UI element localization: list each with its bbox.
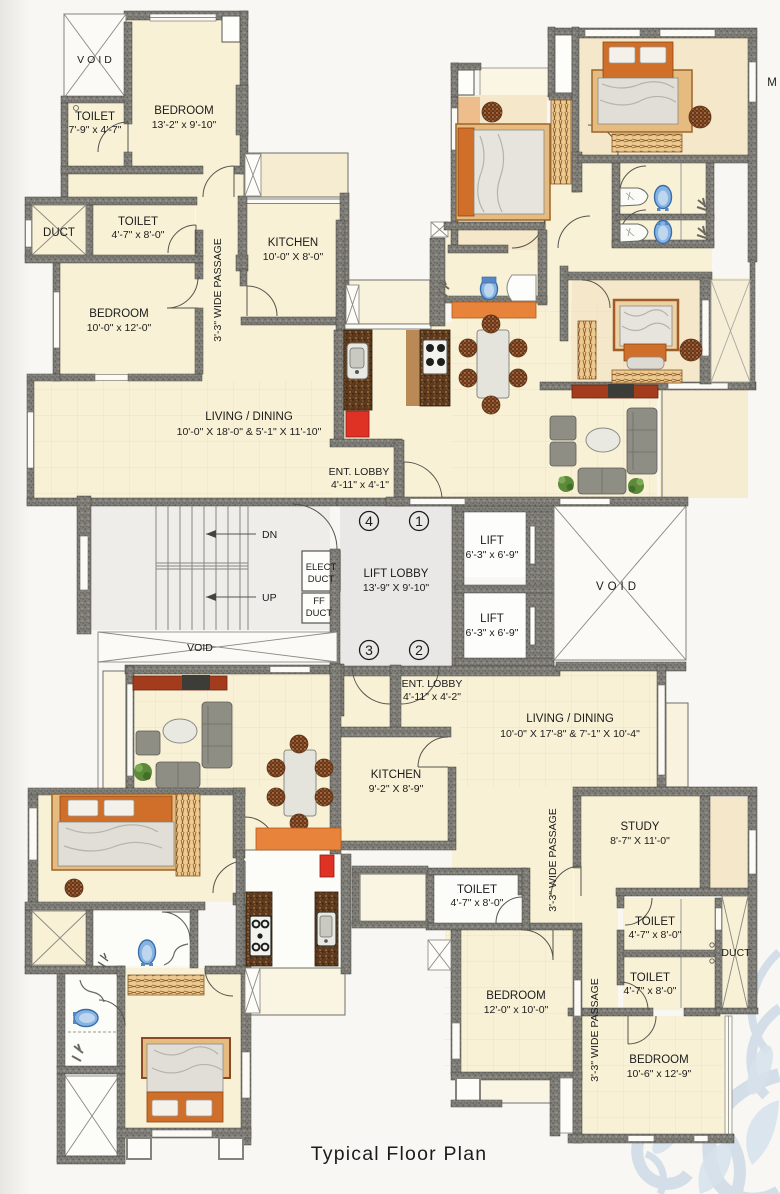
- svg-text:7'-9" x 4'-7": 7'-9" x 4'-7": [69, 124, 122, 136]
- svg-text:13'-9" X 9'-10": 13'-9" X 9'-10": [363, 582, 430, 594]
- svg-text:6'-3" x 6'-9": 6'-3" x 6'-9": [466, 549, 519, 561]
- svg-text:TOILET: TOILET: [630, 972, 670, 984]
- svg-text:BEDROOM: BEDROOM: [486, 990, 545, 1002]
- svg-text:ENT. LOBBY: ENT. LOBBY: [329, 466, 390, 478]
- svg-text:VOID: VOID: [187, 642, 213, 654]
- svg-text:DN: DN: [262, 529, 277, 541]
- svg-text:13'-2" x 9'-10": 13'-2" x 9'-10": [152, 119, 217, 131]
- svg-text:3'-3" WIDE PASSAGE: 3'-3" WIDE PASSAGE: [212, 238, 224, 342]
- svg-text:4'-7" x 8'-0": 4'-7" x 8'-0": [629, 929, 682, 941]
- svg-text:LIFT LOBBY: LIFT LOBBY: [364, 568, 429, 580]
- svg-text:KITCHEN: KITCHEN: [268, 237, 318, 249]
- svg-text:4: 4: [365, 513, 373, 529]
- svg-text:DUCT: DUCT: [306, 608, 333, 619]
- svg-text:FF: FF: [313, 596, 325, 607]
- svg-text:10'-0" X 18'-0" & 5'-1" X 11'-: 10'-0" X 18'-0" & 5'-1" X 11'-10": [177, 426, 322, 438]
- svg-text:LIFT: LIFT: [480, 613, 504, 625]
- svg-text:ELECT: ELECT: [306, 562, 337, 573]
- svg-text:BEDROOM: BEDROOM: [154, 105, 213, 117]
- svg-text:1: 1: [415, 513, 423, 529]
- svg-text:ENT. LOBBY: ENT. LOBBY: [402, 678, 463, 690]
- svg-text:LIVING / DINING: LIVING / DINING: [526, 713, 614, 725]
- svg-text:KITCHEN: KITCHEN: [371, 769, 421, 781]
- svg-text:10'-0" X 8'-0": 10'-0" X 8'-0": [263, 251, 324, 263]
- svg-text:10'-0" x 12'-0": 10'-0" x 12'-0": [87, 322, 152, 334]
- svg-text:VOID: VOID: [77, 54, 115, 66]
- svg-text:TOILET: TOILET: [635, 916, 675, 928]
- svg-text:4'-11" x 4'-1": 4'-11" x 4'-1": [331, 479, 389, 491]
- svg-text:TOILET: TOILET: [118, 216, 158, 228]
- svg-text:STUDY: STUDY: [621, 821, 660, 833]
- svg-text:3'-3" WIDE PASSAGE: 3'-3" WIDE PASSAGE: [547, 808, 559, 912]
- svg-text:TOILET: TOILET: [457, 884, 497, 896]
- svg-text:2: 2: [415, 642, 423, 658]
- svg-text:LIFT: LIFT: [480, 535, 504, 547]
- svg-text:6'-3" x 6'-9": 6'-3" x 6'-9": [466, 627, 519, 639]
- svg-text:10'-6" x 12'-9": 10'-6" x 12'-9": [627, 1068, 692, 1080]
- svg-text:BEDROOM: BEDROOM: [629, 1054, 688, 1066]
- svg-text:DUCT: DUCT: [43, 227, 75, 239]
- svg-text:12'-0" x 10'-0": 12'-0" x 10'-0": [484, 1004, 549, 1016]
- svg-text:LIVING / DINING: LIVING / DINING: [205, 411, 293, 423]
- svg-text:DUCT: DUCT: [308, 574, 335, 585]
- svg-text:4'-11" x 4'-2": 4'-11" x 4'-2": [403, 691, 461, 703]
- svg-text:Typical Floor Plan: Typical Floor Plan: [311, 1143, 488, 1165]
- svg-text:VOID: VOID: [596, 581, 640, 593]
- svg-text:BEDROOM: BEDROOM: [89, 308, 148, 320]
- svg-text:M: M: [767, 77, 777, 89]
- svg-text:9'-2" X 8'-9": 9'-2" X 8'-9": [369, 783, 424, 795]
- svg-text:3'-3" WIDE PASSAGE: 3'-3" WIDE PASSAGE: [589, 978, 601, 1082]
- svg-text:UP: UP: [262, 592, 277, 604]
- svg-text:10'-0" X 17'-8" & 7'-1" X 10'-: 10'-0" X 17'-8" & 7'-1" X 10'-4": [500, 728, 640, 740]
- svg-text:4'-7" x 8'-0": 4'-7" x 8'-0": [624, 985, 677, 997]
- svg-text:DUCT: DUCT: [721, 947, 751, 959]
- svg-text:4'-7" x 8'-0": 4'-7" x 8'-0": [451, 897, 504, 909]
- svg-text:3: 3: [365, 642, 373, 658]
- svg-text:4'-7" x 8'-0": 4'-7" x 8'-0": [112, 229, 165, 241]
- svg-text:TOILET: TOILET: [75, 111, 115, 123]
- svg-text:8'-7" X 11'-0": 8'-7" X 11'-0": [610, 835, 670, 847]
